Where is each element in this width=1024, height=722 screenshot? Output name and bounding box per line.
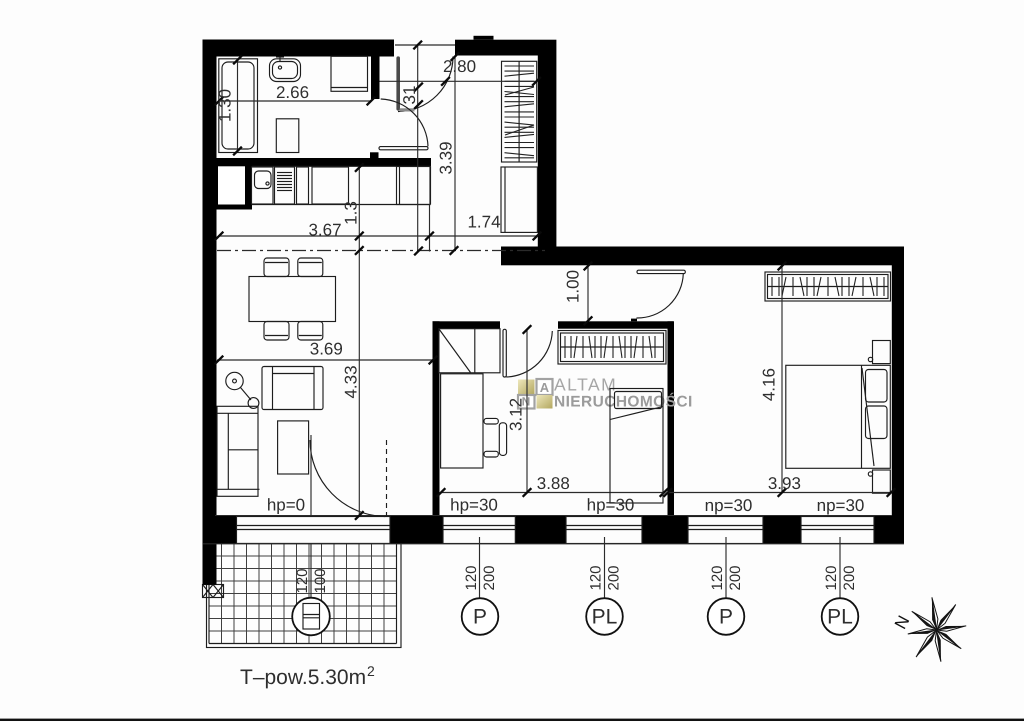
svg-text:1.00: 1.00 bbox=[563, 270, 582, 303]
svg-text:NIERUCHOMOŚCI: NIERUCHOMOŚCI bbox=[554, 393, 693, 411]
svg-text:200: 200 bbox=[727, 565, 744, 590]
svg-text:hp=30: hp=30 bbox=[450, 496, 498, 515]
svg-text:PL: PL bbox=[592, 606, 618, 629]
svg-text:1.3: 1.3 bbox=[341, 201, 360, 225]
svg-text:2.66: 2.66 bbox=[276, 83, 309, 102]
svg-text:31: 31 bbox=[400, 86, 419, 105]
svg-text:3.12: 3.12 bbox=[507, 398, 526, 431]
svg-text:np=30: np=30 bbox=[705, 496, 753, 515]
svg-text:3.88: 3.88 bbox=[537, 474, 570, 493]
svg-text:2: 2 bbox=[367, 663, 375, 679]
svg-text:P: P bbox=[473, 606, 487, 629]
svg-text:3.67: 3.67 bbox=[308, 220, 341, 239]
svg-text:A: A bbox=[540, 380, 550, 395]
svg-text:2.80: 2.80 bbox=[443, 57, 476, 76]
svg-text:1.30: 1.30 bbox=[216, 89, 235, 122]
svg-text:1.74: 1.74 bbox=[467, 213, 500, 232]
svg-text:120: 120 bbox=[709, 565, 726, 590]
svg-text:200: 200 bbox=[606, 565, 623, 590]
svg-text:120: 120 bbox=[294, 568, 311, 593]
svg-text:ALTAM: ALTAM bbox=[554, 375, 617, 395]
svg-text:hp=0: hp=0 bbox=[267, 496, 305, 515]
svg-text:T–pow.5.30m: T–pow.5.30m bbox=[240, 666, 366, 689]
svg-text:100: 100 bbox=[312, 568, 329, 593]
svg-text:PL: PL bbox=[827, 606, 853, 629]
svg-text:P: P bbox=[719, 606, 733, 629]
svg-text:120: 120 bbox=[463, 565, 480, 590]
svg-text:3.39: 3.39 bbox=[437, 141, 456, 174]
svg-text:4.16: 4.16 bbox=[759, 368, 778, 401]
svg-text:3.69: 3.69 bbox=[310, 339, 343, 358]
svg-text:np=30: np=30 bbox=[817, 496, 865, 515]
svg-text:3.93: 3.93 bbox=[768, 474, 801, 493]
svg-text:hp=30: hp=30 bbox=[587, 495, 635, 514]
svg-text:200: 200 bbox=[481, 565, 498, 590]
svg-text:120: 120 bbox=[823, 565, 840, 590]
svg-text:4.33: 4.33 bbox=[341, 365, 360, 398]
svg-text:200: 200 bbox=[841, 565, 858, 590]
svg-text:120: 120 bbox=[588, 565, 605, 590]
